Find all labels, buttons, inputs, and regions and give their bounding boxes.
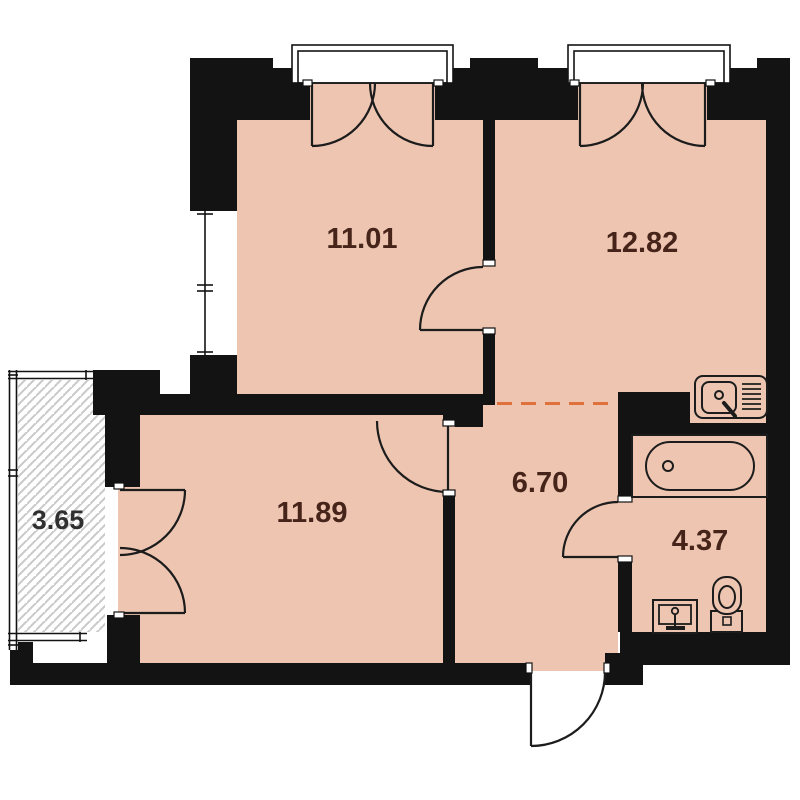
- wall-divider-upper: [483, 120, 495, 265]
- bathroom-door-gap: [618, 502, 632, 557]
- wall-left-above-window: [190, 120, 237, 211]
- entrance-sill: [531, 663, 605, 671]
- wall-bath-left-lower: [618, 557, 632, 632]
- toilet-icon: [711, 577, 742, 632]
- bathtub-icon: [632, 435, 767, 497]
- window-top-right: [568, 45, 730, 83]
- window-left-side: [190, 211, 237, 355]
- wall-divider-lower: [483, 333, 495, 405]
- kitchen-sink-icon: [695, 376, 767, 418]
- wall-bath-left-upper: [618, 435, 632, 502]
- room-bottom-area-label: 11.89: [277, 497, 348, 529]
- wall-top-right-corner: [757, 58, 790, 120]
- wall-bottom: [10, 663, 531, 685]
- room-bottom-floor: [140, 413, 443, 663]
- wall-balcony-door-bottom: [107, 615, 140, 663]
- hallway-area-label: 6.70: [512, 467, 568, 499]
- wall-hall-room-divider: [443, 496, 455, 663]
- wall-bathroom-bottom: [643, 632, 790, 665]
- wall-top-left: [190, 58, 273, 120]
- floor-plan-canvas: 11.01 12.82 3.65 11.89 6.70 4.37: [0, 0, 800, 800]
- wall-entrance-right: [605, 653, 643, 685]
- wall-balcony-corner-block: [93, 370, 160, 394]
- window-top-left: [292, 45, 453, 83]
- wall-balcony-door-top: [105, 415, 140, 487]
- room-top-left-floor: [237, 118, 483, 395]
- kitchen-living-area-label: 12.82: [606, 227, 679, 259]
- hallway-floor: [455, 392, 618, 663]
- wall-entrance-column: [620, 632, 643, 653]
- floor-plan: 11.01 12.82 3.65 11.89 6.70 4.37: [0, 0, 800, 800]
- wall-under-sink: [690, 423, 768, 435]
- washbasin-icon: [653, 600, 697, 633]
- room-top-left-area-label: 11.01: [327, 223, 398, 255]
- wall-right: [766, 118, 790, 665]
- wall-mid-band: [93, 394, 483, 415]
- bathroom-area-label: 4.37: [672, 525, 728, 557]
- wall-kitchen-bath-block: [618, 392, 690, 435]
- wall-stub: [443, 415, 455, 420]
- wall-top-mid: [470, 58, 538, 120]
- entrance-door: [531, 672, 605, 746]
- balcony-area-label: 3.65: [32, 505, 85, 535]
- wall-hall-step: [455, 405, 483, 427]
- room-top-left-door-gap: [483, 265, 495, 333]
